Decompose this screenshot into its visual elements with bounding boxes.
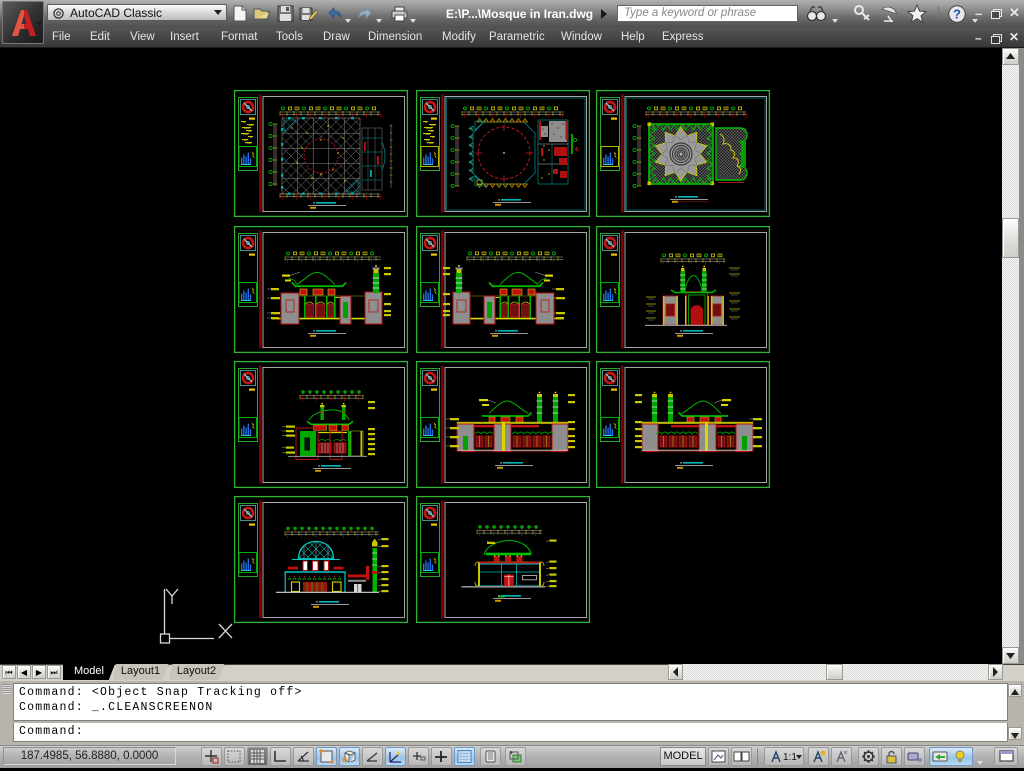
svg-text:?: ? [953,7,961,22]
svg-text:1:1: 1:1 [783,752,797,763]
